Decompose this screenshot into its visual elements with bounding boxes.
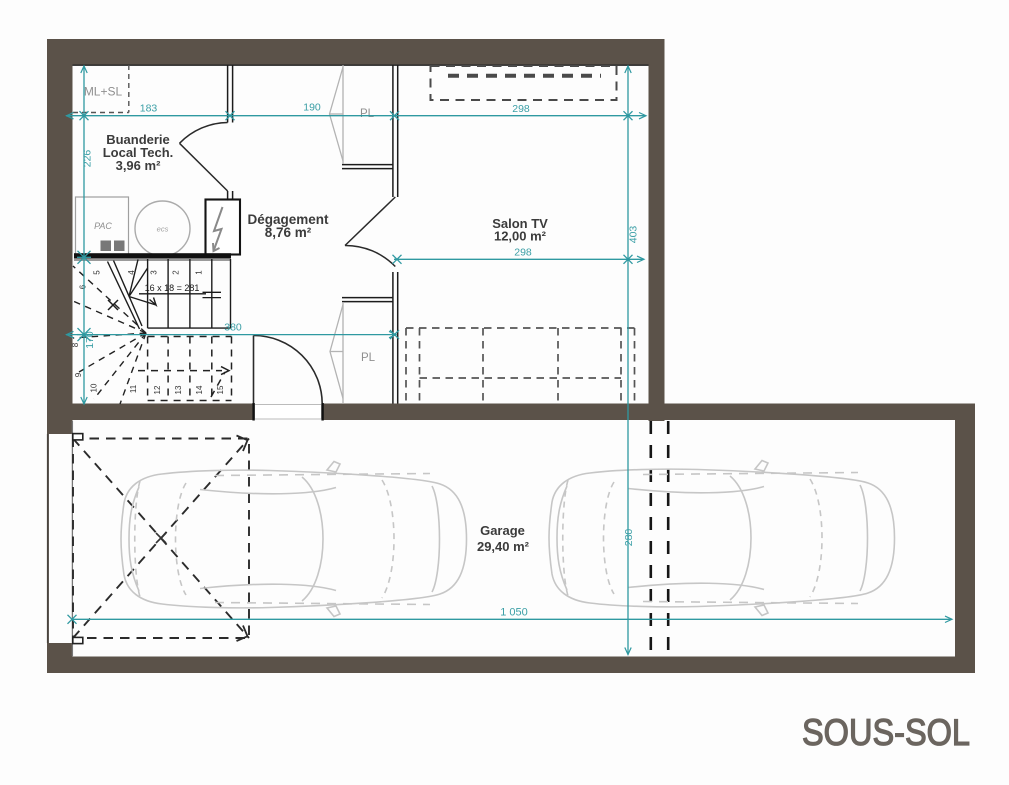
- svg-text:403: 403: [628, 226, 640, 244]
- svg-text:4: 4: [127, 270, 136, 275]
- svg-text:PL: PL: [361, 352, 376, 364]
- svg-text:298: 298: [512, 103, 530, 115]
- svg-text:226: 226: [82, 150, 94, 168]
- svg-text:170: 170: [84, 331, 96, 349]
- svg-text:10: 10: [90, 383, 99, 392]
- svg-text:SOUS-SOL: SOUS-SOL: [802, 712, 970, 753]
- svg-text:2: 2: [172, 270, 181, 275]
- svg-text:380: 380: [224, 322, 242, 334]
- svg-text:13: 13: [174, 385, 183, 394]
- svg-text:8,76 m²: 8,76 m²: [265, 225, 312, 240]
- svg-text:6: 6: [79, 284, 88, 289]
- svg-text:Garage: Garage: [480, 523, 525, 538]
- svg-text:298: 298: [514, 247, 532, 259]
- svg-text:190: 190: [303, 102, 321, 114]
- svg-text:183: 183: [140, 103, 158, 115]
- svg-text:3,96 m²: 3,96 m²: [116, 158, 161, 173]
- svg-text:1 050: 1 050: [500, 607, 528, 619]
- svg-text:ecs: ecs: [157, 225, 169, 234]
- svg-text:5: 5: [93, 270, 102, 275]
- svg-text:15: 15: [216, 385, 225, 394]
- svg-text:PL: PL: [360, 108, 375, 120]
- svg-text:12: 12: [153, 385, 162, 394]
- svg-text:280: 280: [623, 529, 635, 547]
- svg-text:PAC: PAC: [94, 221, 112, 231]
- svg-text:14: 14: [195, 385, 204, 394]
- svg-text:3: 3: [150, 270, 159, 275]
- svg-text:ML+SL: ML+SL: [84, 85, 123, 99]
- svg-text:12,00 m²: 12,00 m²: [494, 229, 547, 244]
- svg-text:29,40 m²: 29,40 m²: [477, 539, 530, 554]
- svg-text:9: 9: [74, 372, 83, 377]
- svg-text:1: 1: [195, 270, 204, 275]
- svg-text:16 x 18 = 281: 16 x 18 = 281: [145, 283, 200, 293]
- svg-text:8: 8: [71, 342, 80, 347]
- svg-text:11: 11: [129, 384, 138, 393]
